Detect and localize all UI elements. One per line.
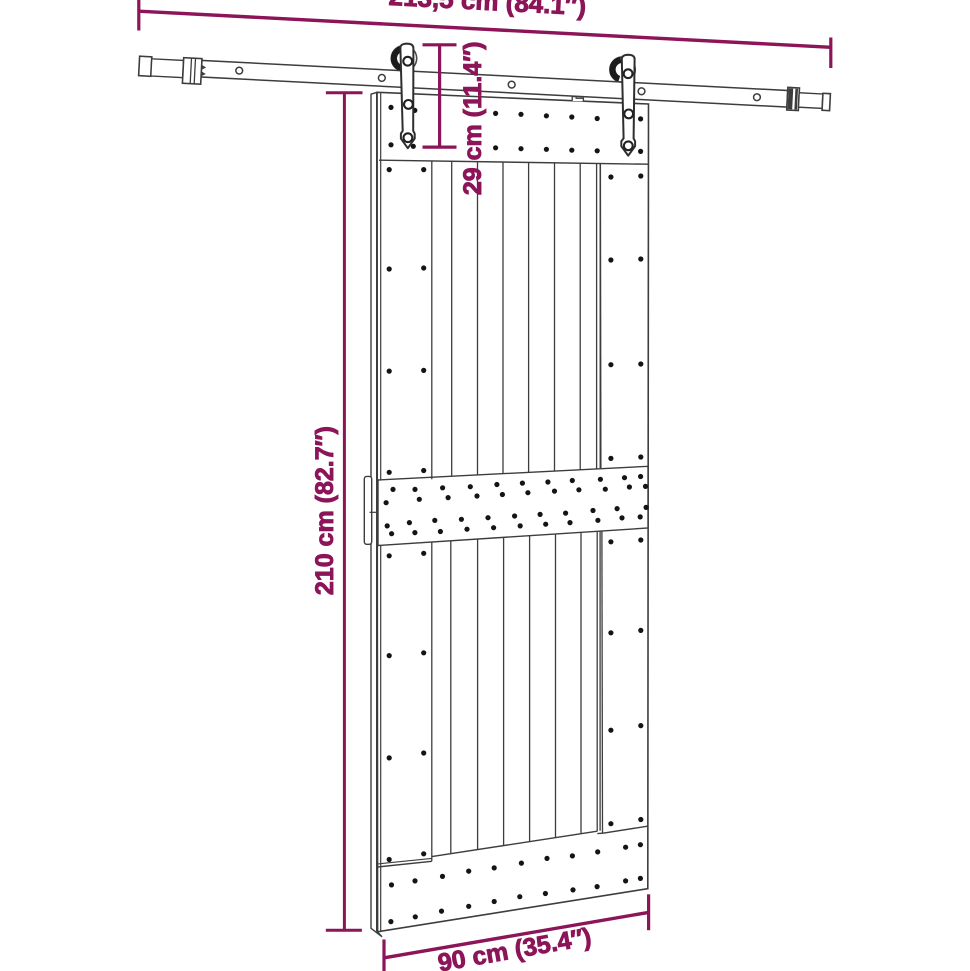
svg-text:29 cm (11.4″): 29 cm (11.4″) [459, 41, 487, 195]
svg-text:210 cm (82.7″): 210 cm (82.7″) [311, 426, 339, 595]
